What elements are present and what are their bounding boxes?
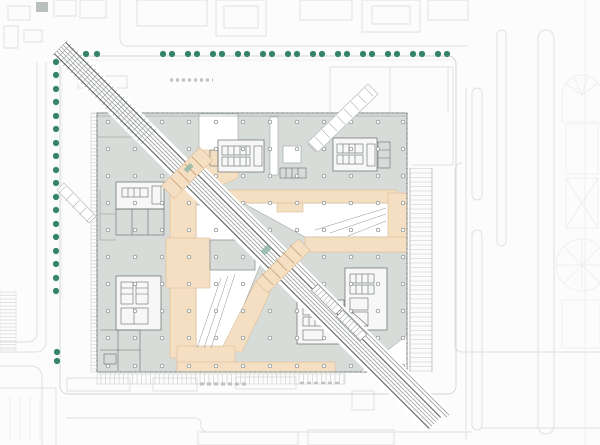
tree-icon: [444, 51, 450, 57]
structural-column: [106, 282, 110, 286]
structural-column: [376, 147, 380, 151]
tree-icon: [169, 51, 175, 57]
structural-column: [214, 282, 218, 286]
structural-column: [268, 309, 272, 313]
structural-column: [241, 255, 245, 259]
tree-icon: [53, 167, 59, 173]
structural-column: [241, 336, 245, 340]
structural-column: [106, 228, 110, 232]
structural-column: [106, 120, 110, 124]
structural-column: [401, 336, 405, 340]
structural-column: [268, 336, 272, 340]
tree-icon: [94, 51, 100, 57]
tree-icon: [394, 51, 400, 57]
tree-icon: [83, 51, 89, 57]
tree-icon: [319, 51, 325, 57]
structural-column: [241, 309, 245, 313]
structural-column: [268, 174, 272, 178]
structural-column: [214, 309, 218, 313]
structural-column: [160, 282, 164, 286]
structural-column: [401, 309, 405, 313]
structural-column: [322, 174, 326, 178]
structural-column: [214, 120, 218, 124]
context-parking-left: [0, 292, 16, 350]
structural-column: [106, 336, 110, 340]
tree-icon: [385, 51, 391, 57]
structural-column: [295, 228, 299, 232]
structural-column: [349, 174, 353, 178]
structural-column: [401, 255, 405, 259]
tree-icon: [160, 51, 166, 57]
tree-icon: [53, 99, 59, 105]
structural-column: [349, 282, 353, 286]
structural-column: [187, 309, 191, 313]
structural-column: [106, 309, 110, 313]
structural-column: [401, 120, 405, 124]
structural-column: [349, 364, 353, 368]
structural-column: [376, 201, 380, 205]
structural-column: [160, 309, 164, 313]
structural-column: [106, 174, 110, 178]
tree-icon: [360, 51, 366, 57]
tree-icon: [53, 194, 59, 200]
structural-column: [187, 147, 191, 151]
tree-icon: [244, 51, 250, 57]
tree-icon: [185, 51, 191, 57]
structural-column: [376, 228, 380, 232]
tree-icon: [53, 86, 59, 92]
tree-icon: [369, 51, 375, 57]
structural-column: [349, 228, 353, 232]
structural-column: [160, 255, 164, 259]
structural-column: [241, 147, 245, 151]
structural-column: [376, 309, 380, 313]
tree-icon: [53, 221, 59, 227]
tree-icon: [53, 207, 59, 213]
structural-column: [268, 147, 272, 151]
tree-icon: [410, 51, 416, 57]
structural-column: [106, 255, 110, 259]
structural-column: [376, 282, 380, 286]
tree-icon: [54, 349, 60, 355]
structural-column: [187, 120, 191, 124]
tree-icon: [219, 51, 225, 57]
structural-column: [214, 228, 218, 232]
structural-column: [160, 364, 164, 368]
structural-column: [268, 201, 272, 205]
structural-column: [214, 336, 218, 340]
structural-column: [133, 255, 137, 259]
structural-column: [106, 364, 110, 368]
structural-column: [160, 120, 164, 124]
structural-column: [401, 282, 405, 286]
structural-column: [295, 201, 299, 205]
structural-column: [160, 336, 164, 340]
structural-column: [295, 120, 299, 124]
structural-column: [376, 120, 380, 124]
tree-icon: [53, 248, 59, 254]
west-sidewalk-hatch: [91, 113, 97, 372]
structural-column: [241, 364, 245, 368]
structural-column: [295, 364, 299, 368]
context-blocks-top: [137, 0, 468, 36]
structural-column: [349, 201, 353, 205]
structural-column: [241, 174, 245, 178]
tree-icon: [53, 126, 59, 132]
structural-column: [160, 228, 164, 232]
structural-column: [322, 336, 326, 340]
structural-column: [295, 147, 299, 151]
structural-column: [187, 255, 191, 259]
tree-icon: [269, 51, 275, 57]
structural-column: [133, 147, 137, 151]
plate-gap: [270, 117, 278, 175]
structural-column: [187, 201, 191, 205]
context-monuments-right: [556, 75, 600, 348]
structural-column: [187, 336, 191, 340]
structural-column: [295, 336, 299, 340]
tree-icon: [285, 51, 291, 57]
structural-column: [295, 309, 299, 313]
tree-icon: [53, 59, 59, 65]
core-north-left: [210, 140, 264, 172]
tree-icon: [53, 153, 59, 159]
tree-icon: [435, 51, 441, 57]
tree-icon: [53, 288, 59, 294]
structural-column: [349, 255, 353, 259]
structural-column: [133, 174, 137, 178]
structural-column: [133, 282, 137, 286]
structural-column: [241, 282, 245, 286]
structural-column: [133, 201, 137, 205]
tree-icon: [53, 113, 59, 119]
structural-column: [106, 201, 110, 205]
tree-icon: [194, 51, 200, 57]
tree-icon: [53, 261, 59, 267]
structural-column: [133, 336, 137, 340]
structural-column: [322, 255, 326, 259]
structural-column: [106, 147, 110, 151]
tree-icon: [344, 51, 350, 57]
tree-icon: [310, 51, 316, 57]
structural-column: [376, 174, 380, 178]
structural-column: [376, 255, 380, 259]
core-west-lower: [116, 276, 161, 330]
tree-icon: [53, 234, 59, 240]
structural-column: [187, 228, 191, 232]
structural-column: [268, 364, 272, 368]
structural-column: [401, 201, 405, 205]
tree-icon: [53, 180, 59, 186]
structural-column: [322, 364, 326, 368]
tree-icon: [210, 51, 216, 57]
structural-column: [133, 309, 137, 313]
structural-column: [322, 120, 326, 124]
structural-column: [133, 228, 137, 232]
structural-column: [214, 255, 218, 259]
structural-column: [160, 201, 164, 205]
south-sidewalk-hatch: [97, 374, 345, 384]
structural-column: [401, 228, 405, 232]
structural-column: [401, 147, 405, 151]
site-plan-canvas: [0, 0, 600, 445]
structural-column: [214, 364, 218, 368]
tree-icon: [235, 51, 241, 57]
tree-icon: [260, 51, 266, 57]
structural-column: [322, 201, 326, 205]
structural-column: [187, 282, 191, 286]
east-arcade-hatch: [410, 168, 432, 372]
context-blocks-top-left: [4, 0, 106, 48]
tree-icon: [53, 140, 59, 146]
structural-column: [268, 120, 272, 124]
structural-column: [241, 120, 245, 124]
site-plan-drawing: [0, 0, 600, 445]
structural-column: [401, 174, 405, 178]
tree-icon: [419, 51, 425, 57]
tree-icon: [54, 358, 60, 364]
structural-column: [160, 174, 164, 178]
tree-icon: [53, 72, 59, 78]
structural-column: [133, 364, 137, 368]
tree-icon: [294, 51, 300, 57]
tree-icon: [53, 275, 59, 281]
tree-icon: [335, 51, 341, 57]
structural-column: [349, 147, 353, 151]
structural-column: [295, 174, 299, 178]
ramp-southwest: [57, 183, 96, 223]
structural-column: [214, 147, 218, 151]
structural-column: [187, 364, 191, 368]
structural-column: [322, 228, 326, 232]
